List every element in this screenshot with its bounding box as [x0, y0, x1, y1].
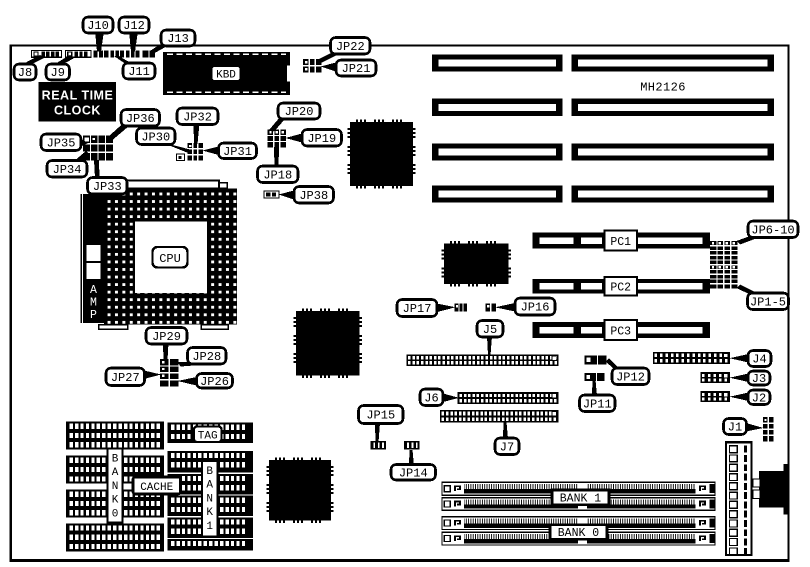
svg-text:J13: J13	[167, 32, 189, 46]
svg-text:JP1-5: JP1-5	[750, 295, 786, 309]
svg-text:MH2126: MH2126	[640, 81, 686, 95]
svg-text:J1: J1	[728, 421, 742, 435]
svg-text:JP33: JP33	[93, 180, 122, 194]
svg-text:J7: J7	[500, 440, 514, 454]
svg-text:B: B	[206, 466, 213, 478]
svg-text:JP12: JP12	[616, 370, 645, 384]
svg-text:JP17: JP17	[403, 302, 432, 316]
svg-text:JP29: JP29	[152, 330, 181, 344]
svg-text:M: M	[90, 297, 97, 310]
svg-text:J6: J6	[424, 391, 438, 405]
svg-text:JP16: JP16	[521, 301, 550, 315]
svg-text:JP28: JP28	[192, 350, 221, 364]
svg-text:CLOCK: CLOCK	[54, 104, 101, 118]
svg-text:J10: J10	[87, 19, 109, 33]
svg-text:N: N	[206, 493, 213, 505]
svg-text:K: K	[206, 507, 213, 519]
svg-text:JP20: JP20	[285, 105, 314, 119]
svg-text:J12: J12	[123, 19, 145, 33]
svg-text:JP21: JP21	[342, 62, 371, 76]
svg-text:PC3: PC3	[610, 325, 631, 338]
svg-text:A: A	[90, 284, 97, 297]
svg-text:0: 0	[112, 508, 119, 520]
svg-text:J8: J8	[18, 66, 32, 80]
svg-text:J11: J11	[128, 65, 150, 79]
svg-text:B: B	[112, 454, 119, 466]
svg-text:J4: J4	[752, 353, 766, 367]
svg-text:JP15: JP15	[366, 409, 395, 423]
svg-text:A: A	[112, 467, 119, 479]
svg-text:JP35: JP35	[47, 136, 76, 150]
svg-text:KBD: KBD	[216, 70, 236, 82]
svg-text:1: 1	[206, 521, 213, 533]
svg-text:JP32: JP32	[183, 110, 212, 124]
svg-text:JP26: JP26	[200, 375, 229, 389]
svg-text:REAL TIME: REAL TIME	[42, 89, 114, 103]
svg-text:J2: J2	[752, 391, 766, 405]
svg-text:JP27: JP27	[111, 371, 140, 385]
svg-text:TAG: TAG	[198, 431, 218, 443]
svg-text:CACHE: CACHE	[140, 482, 173, 494]
svg-text:JP18: JP18	[263, 168, 292, 182]
svg-text:JP34: JP34	[53, 163, 82, 177]
svg-text:JP31: JP31	[223, 145, 252, 159]
svg-text:P: P	[90, 309, 97, 322]
svg-text:JP36: JP36	[126, 112, 155, 126]
svg-text:PC1: PC1	[610, 236, 631, 249]
svg-text:JP14: JP14	[399, 466, 428, 480]
svg-text:K: K	[112, 495, 119, 507]
svg-text:J9: J9	[51, 66, 65, 80]
svg-text:JP22: JP22	[336, 40, 365, 54]
svg-text:JP11: JP11	[583, 397, 612, 411]
svg-text:JP6-10: JP6-10	[751, 223, 794, 237]
svg-text:N: N	[112, 481, 119, 493]
svg-text:CPU: CPU	[159, 252, 181, 266]
svg-text:PC2: PC2	[610, 281, 631, 294]
svg-text:BANK 0: BANK 0	[558, 527, 600, 540]
svg-text:BANK 1: BANK 1	[560, 493, 602, 506]
svg-text:JP30: JP30	[141, 130, 170, 144]
svg-text:J3: J3	[752, 372, 766, 386]
svg-text:JP38: JP38	[299, 189, 328, 203]
svg-text:A: A	[206, 480, 213, 492]
svg-text:JP19: JP19	[307, 132, 336, 146]
svg-text:J5: J5	[483, 323, 497, 337]
